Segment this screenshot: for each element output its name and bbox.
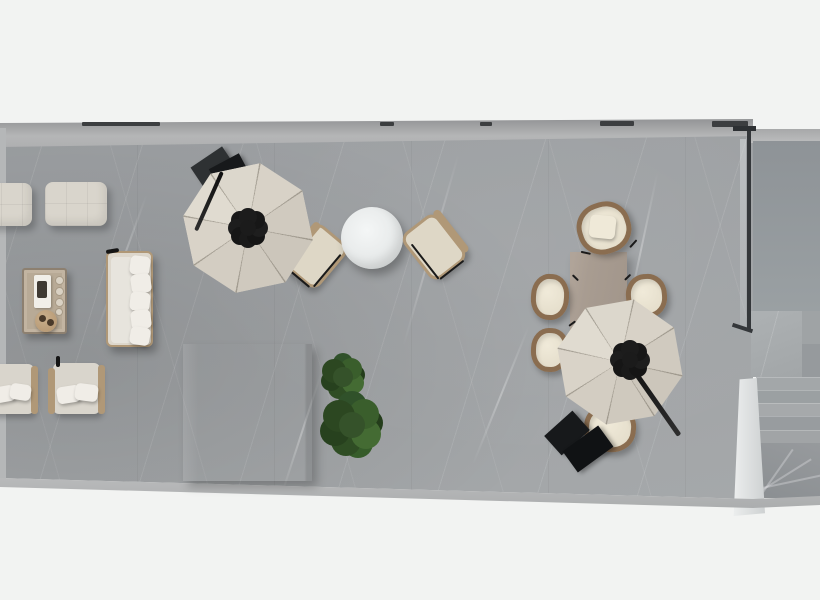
- armchair-rail: [48, 368, 55, 414]
- interior-wall: [753, 141, 820, 312]
- parasol-canopy: [546, 288, 694, 436]
- stair-winder: [758, 443, 820, 498]
- glass-partition-frame-top: [733, 126, 756, 131]
- coffee-table[interactable]: [22, 268, 67, 334]
- window-frame-dash: [480, 122, 492, 126]
- ottoman[interactable]: [0, 183, 32, 226]
- armchair-rail: [31, 366, 38, 414]
- serving-tray: [34, 275, 51, 308]
- armchair-pillow: [9, 383, 32, 402]
- chair-pillow: [588, 214, 616, 240]
- window-frame-dash: [380, 122, 394, 126]
- cup: [55, 298, 64, 307]
- bistro-table[interactable]: [341, 207, 403, 269]
- sofa-handle: [106, 248, 119, 254]
- cup: [55, 287, 64, 296]
- parasol-hub: [240, 220, 256, 236]
- ottoman[interactable]: [45, 182, 107, 226]
- window-frame-dash: [82, 122, 160, 126]
- stair-step: [757, 403, 820, 416]
- snack-plate: [35, 310, 57, 332]
- tray-item: [37, 281, 47, 298]
- stair-winder-line: [761, 458, 811, 490]
- parasol-hub: [622, 352, 638, 368]
- parasol[interactable]: [556, 298, 684, 426]
- counter-block[interactable]: [183, 344, 312, 481]
- stair-side-upper: [802, 311, 820, 344]
- terrace-scene: [0, 0, 820, 600]
- cup: [55, 308, 63, 316]
- stair-step: [757, 416, 820, 430]
- armchair-rail: [98, 365, 105, 414]
- sofa[interactable]: [106, 251, 153, 347]
- glass-partition-frame: [747, 131, 751, 329]
- cookie: [39, 315, 46, 322]
- stair-side-lower: [802, 344, 820, 377]
- armchair-pillow: [74, 383, 99, 403]
- left-wall-edge: [0, 128, 6, 480]
- stair-step: [756, 390, 820, 403]
- stair-step: [756, 377, 820, 390]
- plant[interactable]: [333, 367, 353, 387]
- armchair[interactable]: [48, 361, 105, 414]
- stair-step: [758, 430, 820, 443]
- plant[interactable]: [339, 412, 365, 438]
- sofa-pillow: [129, 326, 152, 347]
- armchair[interactable]: [0, 362, 38, 414]
- glass-pane: [740, 139, 746, 329]
- cup: [55, 276, 64, 285]
- cookie: [47, 319, 54, 326]
- armchair-handle: [56, 356, 60, 367]
- stair-landing: [751, 311, 802, 377]
- window-frame-dash: [600, 121, 634, 126]
